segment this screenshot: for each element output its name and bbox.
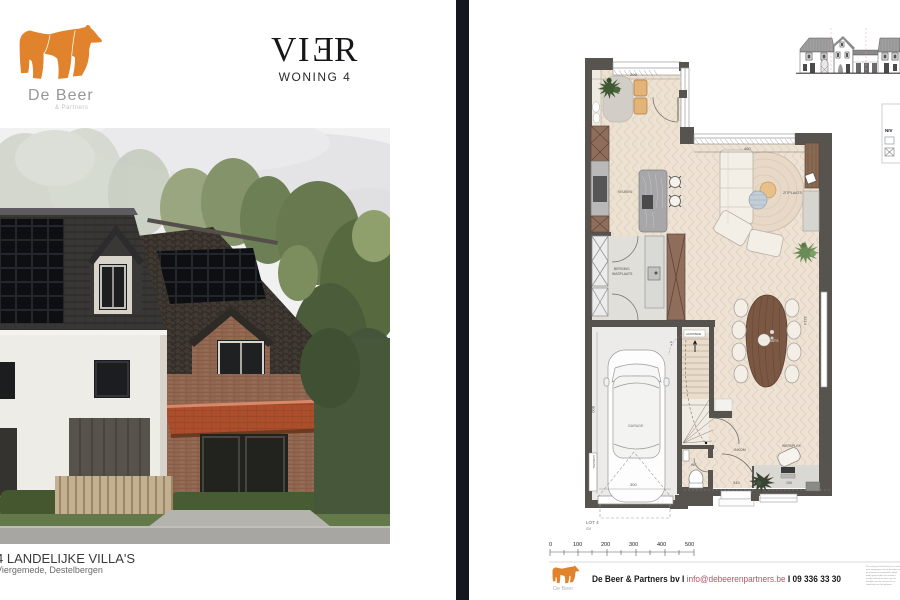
svg-text:AANTREDE: AANTREDE — [686, 332, 701, 336]
svg-text:WERKPLEK: WERKPLEK — [782, 444, 802, 448]
svg-text:afwerking van het gebouw: afwerking van het gebouw — [866, 583, 892, 586]
svg-text:GARAGE: GARAGE — [628, 424, 644, 428]
svg-text:460: 460 — [744, 146, 751, 151]
svg-text:De Beer & Partners bv I info@d: De Beer & Partners bv I info@debeerenpar… — [592, 574, 841, 585]
svg-text:KEUKEN: KEUKEN — [618, 190, 632, 194]
svg-text:EETPLAATS: EETPLAATS — [758, 339, 779, 343]
svg-text:BERGING: BERGING — [614, 267, 630, 271]
svg-text:De Beer: De Beer — [553, 586, 573, 592]
svg-text:100: 100 — [573, 542, 582, 548]
svg-text:INKOM: INKOM — [734, 448, 746, 452]
svg-text:200: 200 — [601, 542, 610, 548]
svg-text:NIV: NIV — [885, 128, 893, 133]
svg-text:De Beer: De Beer — [28, 87, 94, 104]
svg-text:De verkoper behoudt zich het r: De verkoper behoudt zich het recht — [866, 565, 900, 568]
svg-text:kwaliteit van de constructie e: kwaliteit van de constructie en — [866, 580, 896, 583]
svg-text:voor wijzigingen aan te brenge: voor wijzigingen aan te brengen aan — [866, 568, 900, 571]
svg-text:GV: GV — [586, 527, 592, 531]
svg-text:300: 300 — [630, 482, 637, 487]
svg-text:WC: WC — [691, 463, 697, 467]
svg-text:ZITPLAATS: ZITPLAATS — [783, 191, 803, 195]
svg-text:340: 340 — [733, 480, 740, 485]
svg-text:de plannen en materialen indie: de plannen en materialen indien — [866, 571, 898, 574]
svg-text:nodig geacht door de architect: nodig geacht door de architect — [866, 574, 896, 577]
svg-text:500: 500 — [685, 542, 694, 548]
svg-text:LOT 4: LOT 4 — [586, 520, 599, 525]
svg-text:zonder afbreuk te doen aan de: zonder afbreuk te doen aan de — [866, 577, 897, 580]
svg-text:1214: 1214 — [803, 316, 808, 326]
svg-text:400: 400 — [657, 542, 666, 548]
svg-text:& Partners: & Partners — [55, 105, 88, 111]
svg-text:GASKETEL: GASKETEL — [592, 455, 596, 469]
svg-text:WASPLAATS: WASPLAATS — [612, 272, 633, 276]
svg-text:206: 206 — [630, 72, 637, 77]
svg-text:300: 300 — [629, 542, 638, 548]
svg-text:600: 600 — [591, 406, 596, 413]
svg-text:0: 0 — [549, 542, 552, 548]
svg-text:100: 100 — [786, 481, 792, 485]
